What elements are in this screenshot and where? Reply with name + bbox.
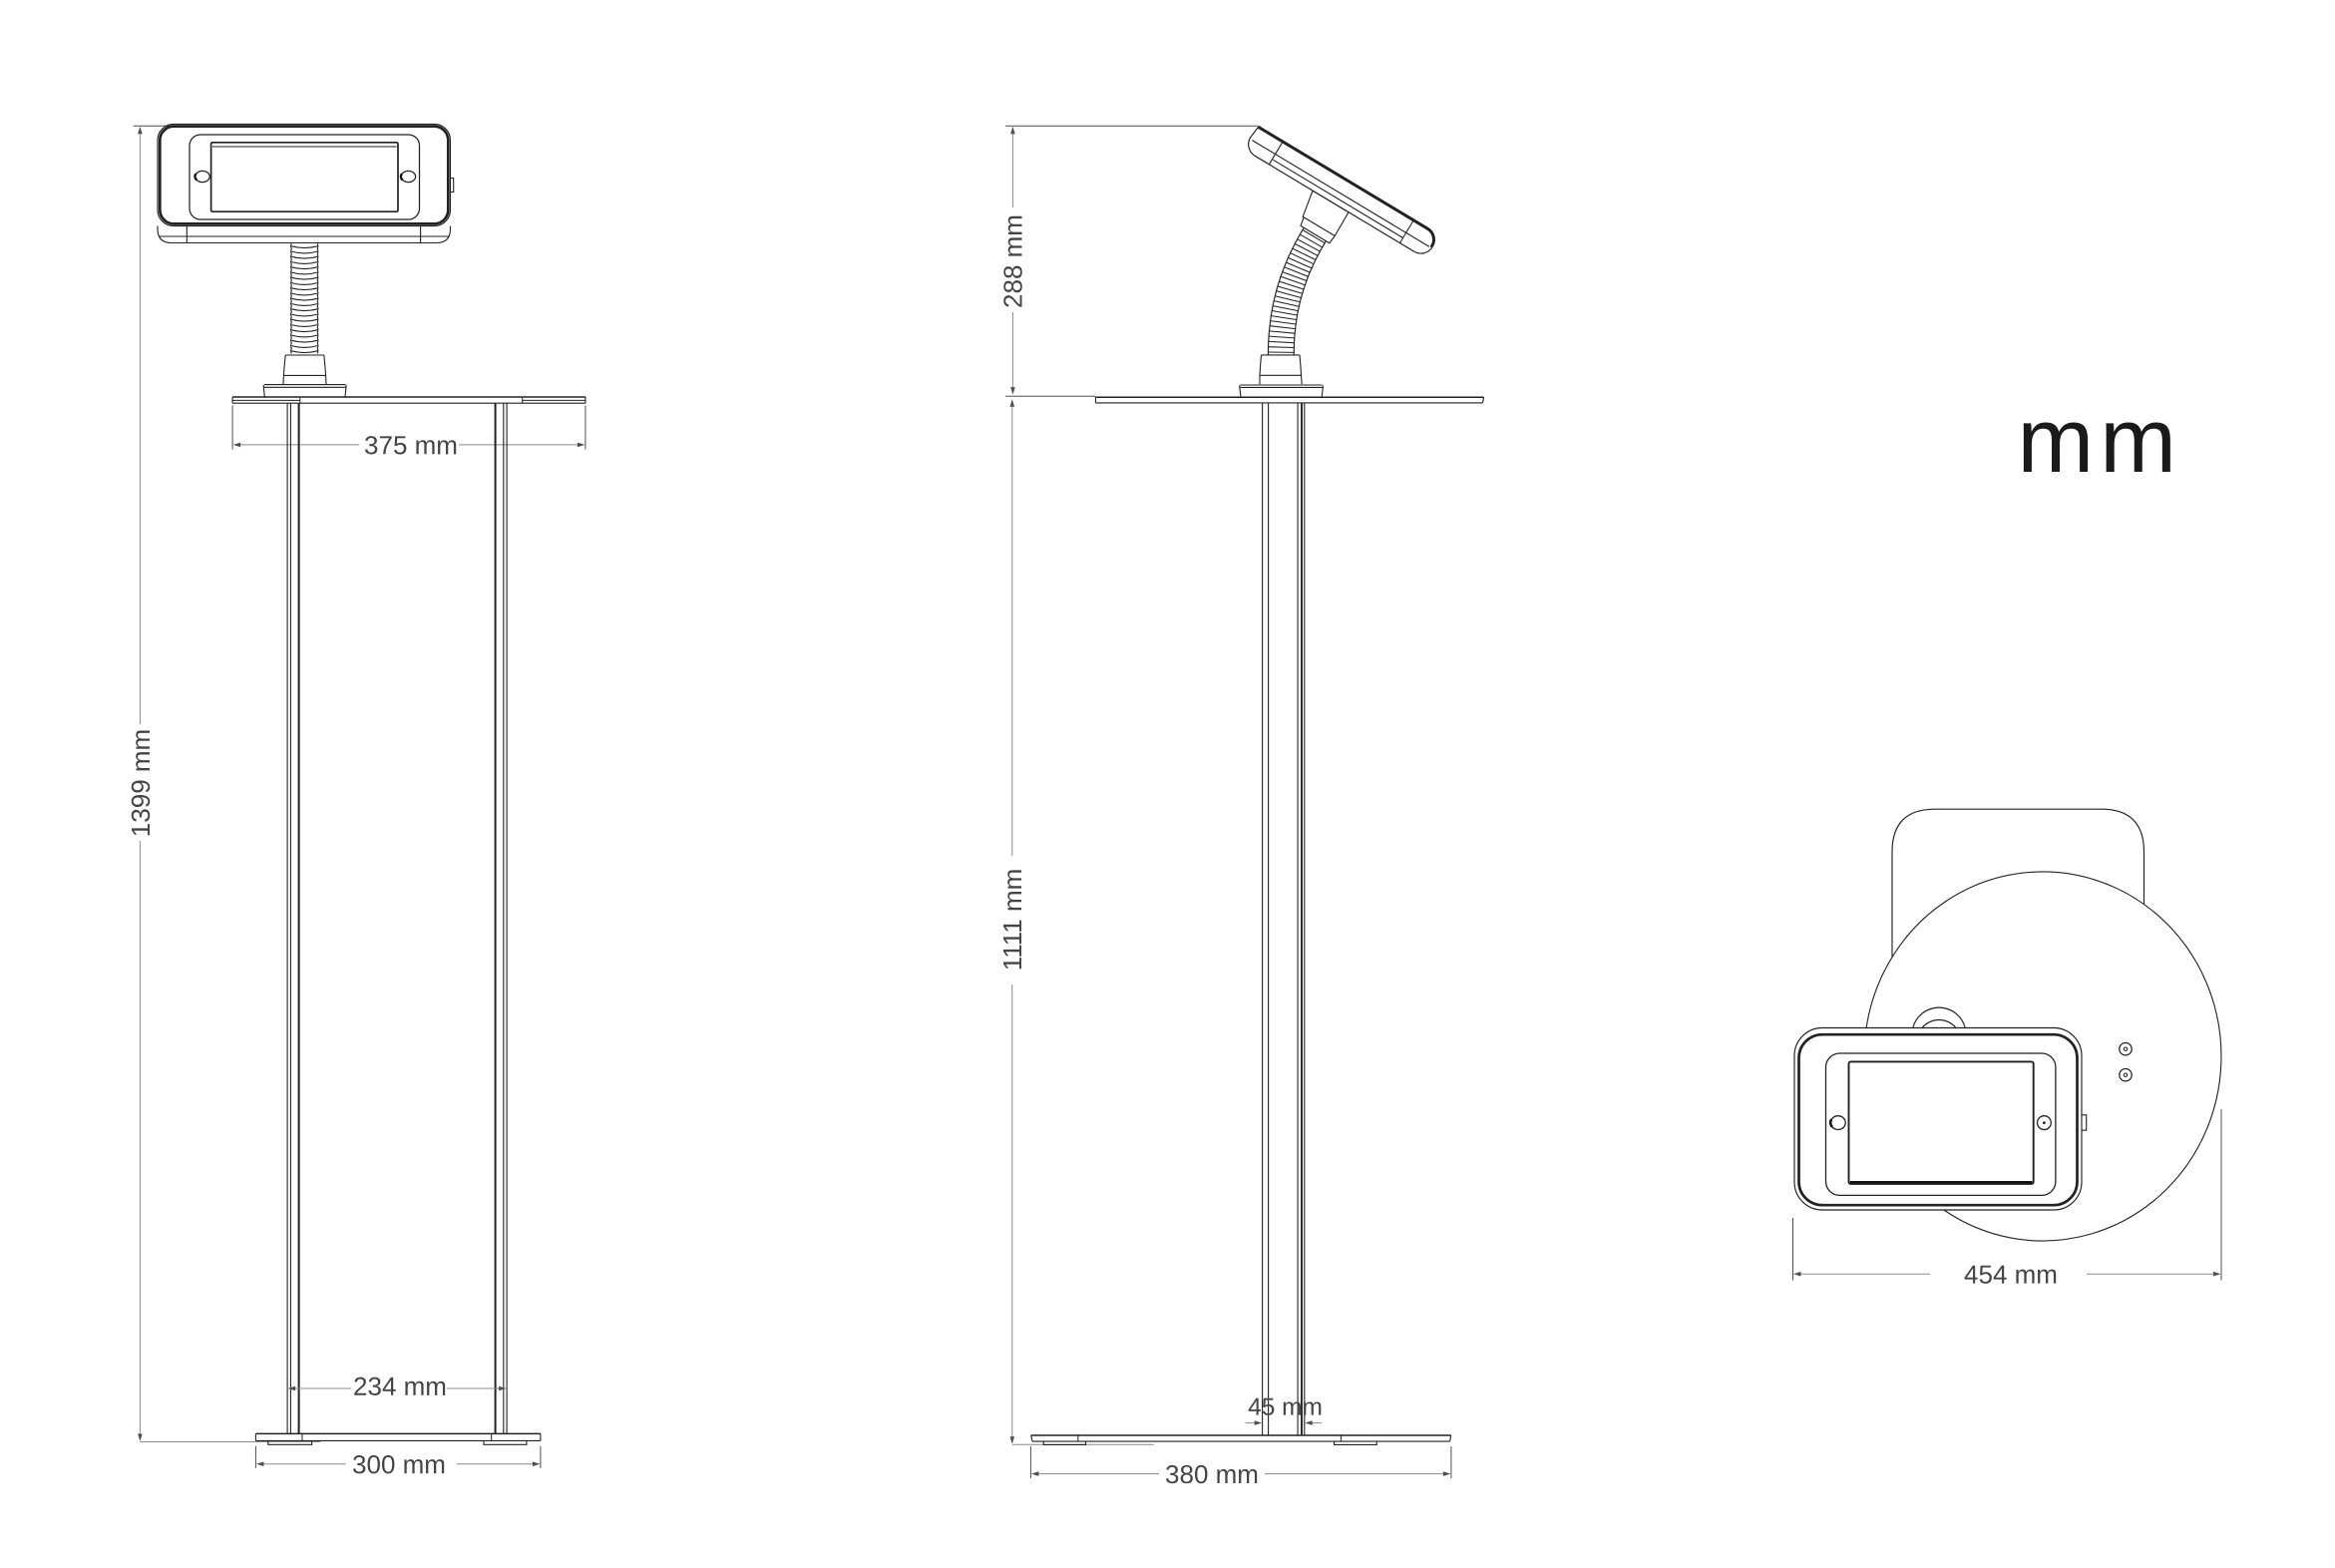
svg-text:1111 mm: 1111 mm: [997, 869, 1027, 972]
svg-text:1399 mm: 1399 mm: [126, 729, 156, 837]
svg-text:45 mm: 45 mm: [1248, 1394, 1323, 1421]
svg-text:380 mm: 380 mm: [1165, 1459, 1259, 1489]
svg-text:288 mm: 288 mm: [997, 214, 1027, 308]
svg-text:300 mm: 300 mm: [352, 1449, 446, 1479]
svg-text:mm: mm: [2018, 390, 2182, 492]
svg-text:375 mm: 375 mm: [364, 430, 458, 460]
svg-text:234 mm: 234 mm: [353, 1372, 447, 1401]
svg-text:454 mm: 454 mm: [1964, 1260, 2058, 1290]
